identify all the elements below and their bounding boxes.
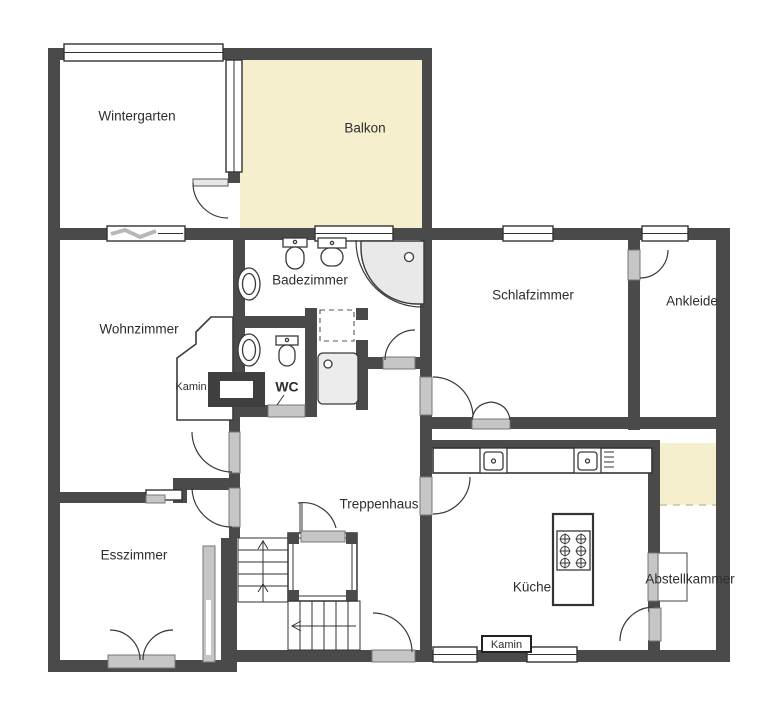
door-swing-icon xyxy=(383,330,415,369)
room-label-balkon: Balkon xyxy=(344,121,385,136)
floor-plan: Kamin Wintergarten Balkon Wohnzimmer Bad… xyxy=(0,0,777,722)
storage-highlight-area xyxy=(660,443,716,505)
sink-icon xyxy=(238,268,260,300)
kitchen-counter xyxy=(433,448,652,473)
door-swing-icon xyxy=(628,250,668,280)
corner-shower-icon xyxy=(356,240,424,307)
room-label-badezimmer: Badezimmer xyxy=(272,273,348,288)
toilet-icon xyxy=(318,238,346,266)
toilet-icon xyxy=(276,336,298,366)
bidet-icon xyxy=(283,238,307,269)
stairs-up-icon xyxy=(238,538,288,602)
window-icon xyxy=(642,226,688,241)
door-swing-icon xyxy=(372,613,415,662)
shower-tray-icon xyxy=(318,353,358,404)
fireplace-icon xyxy=(177,317,265,420)
door-swing-icon xyxy=(193,179,228,218)
window-icon xyxy=(503,226,553,241)
sliding-door-icon xyxy=(268,395,305,417)
stairs-down-icon xyxy=(288,601,360,650)
room-label-treppenhaus: Treppenhaus xyxy=(339,497,418,512)
room-label-abstellkammer: Abstellkammer xyxy=(645,572,735,587)
kitchen-sink-icon xyxy=(480,448,507,473)
folding-window-icon xyxy=(107,226,185,241)
door-swing-icon xyxy=(420,477,470,515)
kamin-kueche-label: Kamin xyxy=(491,639,522,651)
sink-icon xyxy=(238,334,260,366)
shower-niche xyxy=(320,310,354,341)
double-door-icon xyxy=(472,402,510,429)
door-swing-icon xyxy=(620,607,661,641)
room-label-wintergarten: Wintergarten xyxy=(98,109,175,124)
room-label-esszimmer: Esszimmer xyxy=(101,548,168,563)
balcony-area xyxy=(240,58,422,228)
double-door-icon xyxy=(108,630,175,668)
sliding-door-icon xyxy=(203,546,215,662)
window-icon xyxy=(527,647,577,662)
door-swing-icon xyxy=(420,377,473,417)
room-label-kueche: Küche xyxy=(513,580,551,595)
door-swing-icon xyxy=(192,432,240,473)
window-icon xyxy=(64,44,223,61)
elevator-icon xyxy=(288,531,357,601)
room-label-schlafzimmer: Schlafzimmer xyxy=(492,288,574,303)
kitchen-island xyxy=(553,514,593,605)
window-icon xyxy=(226,60,242,172)
stove-icon xyxy=(557,531,590,570)
room-label-wohnzimmer: Wohnzimmer xyxy=(99,322,179,337)
room-label-wc: WC xyxy=(275,379,298,395)
fireplace-box: Kamin xyxy=(482,636,531,652)
kamin-wohnzimmer-label: Kamin xyxy=(175,381,206,393)
room-label-ankleide: Ankleide xyxy=(666,294,718,309)
elevator-door xyxy=(301,531,345,542)
door-swing-icon xyxy=(192,488,240,527)
kitchen-fixtures: Kamin xyxy=(433,448,652,652)
window-icon xyxy=(433,647,477,662)
floor-plan-canvas: Kamin Wintergarten Balkon Wohnzimmer Bad… xyxy=(0,0,777,722)
